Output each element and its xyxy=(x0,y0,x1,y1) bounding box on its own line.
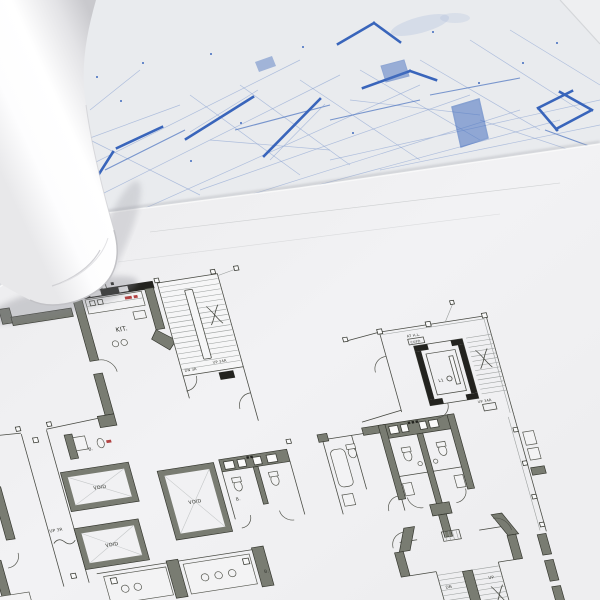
photo-of-blueprints: KIT. DN 3R UP 34R xyxy=(0,0,600,600)
